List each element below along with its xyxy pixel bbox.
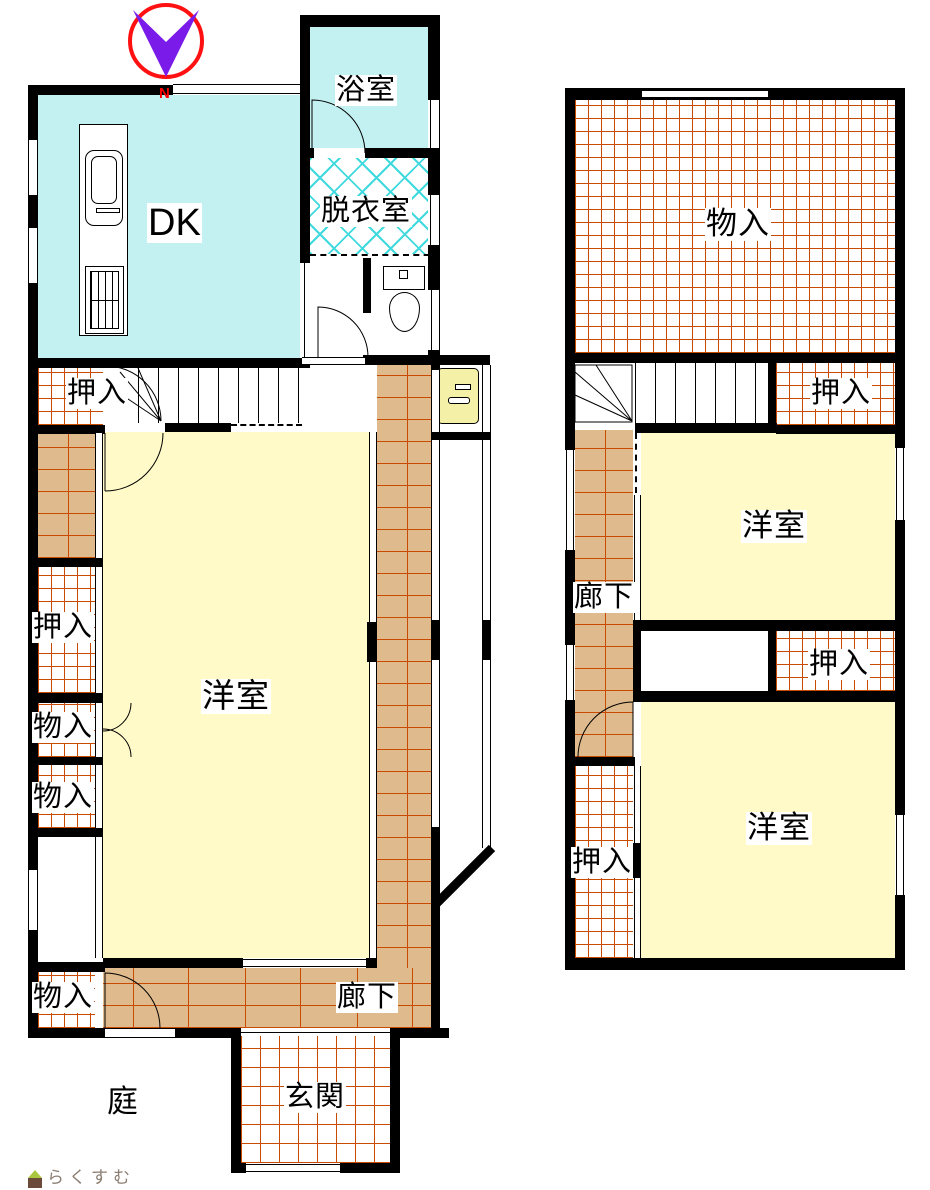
engawa-floor-area bbox=[38, 433, 95, 558]
wall bbox=[428, 245, 440, 290]
sliding-partition bbox=[634, 766, 641, 843]
stairs-floor2 bbox=[635, 363, 775, 423]
house-base-icon bbox=[28, 1178, 42, 1188]
sliding-partition bbox=[369, 662, 377, 958]
room-label-closet-left-f1: 押入 bbox=[32, 612, 94, 643]
toilet-bowl bbox=[389, 292, 420, 332]
wall bbox=[165, 423, 231, 432]
wall bbox=[28, 85, 173, 95]
wall bbox=[363, 355, 490, 365]
wall bbox=[565, 958, 905, 970]
room-label-bathroom: 浴室 bbox=[335, 75, 397, 106]
washbasin-handle bbox=[448, 397, 470, 404]
wall bbox=[633, 620, 905, 631]
wall bbox=[565, 88, 575, 363]
room-label-closet-upper-f1: 押入 bbox=[66, 378, 128, 409]
window bbox=[430, 100, 440, 150]
window bbox=[431, 368, 440, 620]
wall bbox=[776, 425, 905, 434]
wall bbox=[363, 258, 371, 313]
wall bbox=[28, 425, 105, 434]
compass-north-label: N bbox=[158, 86, 172, 102]
sliding-partition bbox=[634, 878, 641, 958]
room-label-closet-lower-f2: 押入 bbox=[571, 847, 633, 878]
window bbox=[896, 448, 904, 520]
wall bbox=[633, 631, 641, 691]
house-roof-icon bbox=[28, 1170, 42, 1178]
window bbox=[482, 365, 491, 620]
room-label-storage2-f1: 物入 bbox=[32, 782, 94, 813]
wall bbox=[390, 1028, 400, 1173]
window bbox=[173, 84, 300, 94]
watermark-text: らくすむ bbox=[47, 1163, 135, 1188]
room-label-storage-f2: 物入 bbox=[705, 208, 771, 241]
kitchen-faucet bbox=[96, 208, 120, 213]
window bbox=[243, 959, 366, 967]
wall bbox=[28, 1028, 105, 1038]
wall bbox=[895, 88, 905, 448]
wall bbox=[231, 1163, 246, 1173]
kitchen-sink-basin bbox=[91, 156, 117, 204]
washbasin-faucet bbox=[455, 384, 471, 390]
window bbox=[28, 228, 38, 283]
wall bbox=[366, 958, 377, 968]
wall bbox=[365, 148, 440, 158]
room-label-corridor-f2: 廊下 bbox=[573, 582, 635, 613]
wall bbox=[300, 15, 440, 27]
wall bbox=[431, 358, 440, 370]
diagonal-wall bbox=[435, 848, 492, 905]
wall bbox=[103, 958, 243, 968]
wall bbox=[431, 620, 440, 660]
wall bbox=[340, 1163, 400, 1173]
wall bbox=[28, 195, 38, 228]
wall bbox=[895, 520, 905, 815]
room-label-corridor-f1: 廊下 bbox=[336, 982, 398, 1013]
wall bbox=[768, 363, 776, 425]
house-icon bbox=[28, 1170, 42, 1188]
wall bbox=[28, 757, 103, 765]
door-dashed bbox=[635, 433, 637, 493]
window bbox=[431, 290, 440, 350]
understairs-dashed bbox=[231, 424, 302, 426]
window bbox=[105, 1028, 175, 1038]
sliding-door-dashed bbox=[310, 254, 440, 256]
wall bbox=[28, 358, 310, 368]
compass-north-arrow-icon bbox=[133, 10, 199, 77]
wall bbox=[565, 363, 575, 450]
wall bbox=[431, 827, 440, 1038]
wall bbox=[565, 700, 575, 963]
window bbox=[566, 645, 574, 700]
room-label-storage3-f1: 物入 bbox=[32, 982, 94, 1013]
entrance-door bbox=[246, 1164, 340, 1172]
window bbox=[642, 90, 768, 98]
wall bbox=[393, 1028, 449, 1038]
stairs-floor1 bbox=[138, 368, 302, 423]
room-label-western-upper-f2: 洋室 bbox=[741, 510, 807, 543]
wall-thin bbox=[304, 263, 306, 358]
sliding-partition bbox=[634, 495, 641, 622]
room-label-garden: 庭 bbox=[106, 1086, 140, 1119]
stair-winder-lines-f2 bbox=[575, 365, 632, 421]
window bbox=[28, 870, 38, 930]
window bbox=[430, 195, 440, 245]
wall bbox=[482, 620, 491, 660]
wall bbox=[633, 691, 905, 702]
room-label-closet-upper-f2: 押入 bbox=[810, 378, 872, 409]
wall bbox=[635, 423, 777, 433]
wall bbox=[768, 631, 776, 691]
window bbox=[482, 660, 491, 848]
wall bbox=[575, 757, 635, 766]
wall bbox=[231, 1028, 241, 1173]
watermark-logo: らくすむ bbox=[28, 1163, 135, 1188]
window bbox=[566, 450, 574, 550]
wall bbox=[28, 558, 103, 567]
room-label-western-lower-f2: 洋室 bbox=[746, 812, 812, 845]
wall bbox=[431, 432, 491, 440]
corridor-vertical-area bbox=[377, 365, 431, 970]
room-label-dk: DK bbox=[147, 203, 202, 243]
room-label-closet-middle-f2: 押入 bbox=[808, 649, 870, 680]
wall bbox=[28, 828, 103, 837]
entrance-step-line bbox=[241, 1032, 390, 1033]
window bbox=[896, 815, 904, 895]
stair-winder-box-f2 bbox=[575, 365, 632, 422]
wall bbox=[565, 353, 905, 363]
wall bbox=[28, 85, 38, 140]
stove-burner-grid bbox=[90, 271, 119, 329]
window bbox=[28, 140, 38, 195]
wall bbox=[428, 15, 440, 100]
wall bbox=[633, 843, 641, 878]
window bbox=[302, 357, 365, 365]
room-label-western-f1: 洋室 bbox=[201, 679, 271, 714]
sliding-partition bbox=[369, 432, 377, 622]
room-label-entrance: 玄関 bbox=[284, 1082, 346, 1113]
wall bbox=[28, 962, 105, 972]
toilet-flush-button bbox=[399, 270, 408, 279]
room-label-storage1-f1: 物入 bbox=[32, 712, 94, 743]
window bbox=[431, 660, 440, 827]
toilet-door-arc bbox=[318, 307, 368, 357]
room-label-dressing: 脱衣室 bbox=[320, 196, 412, 227]
floor-plan: N DK 浴室 脱衣室 押入 洋室 押入 物入 物入 物入 廊下 玄関 庭 物入… bbox=[0, 0, 930, 1190]
washbasin bbox=[437, 368, 479, 424]
wall bbox=[300, 85, 310, 263]
wall bbox=[175, 1028, 233, 1038]
wall bbox=[367, 622, 377, 662]
compass-circle bbox=[130, 5, 202, 77]
wall bbox=[28, 693, 103, 703]
